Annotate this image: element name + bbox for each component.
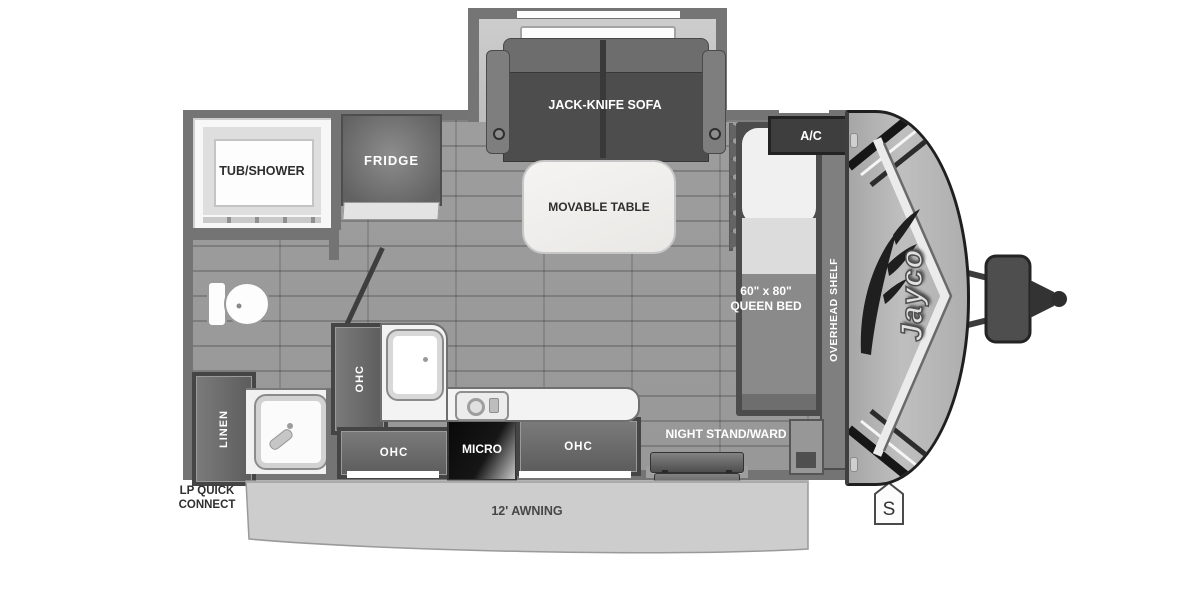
bathroom-wall-right: [331, 118, 341, 230]
jack-knife-sofa-label: JACK-KNIFE SOFA: [505, 98, 705, 112]
dinette-window: [519, 471, 631, 478]
fridge-cabinet: FRIDGE: [341, 114, 442, 206]
sofa-hinge-icon: [493, 128, 505, 140]
toilet-icon: [203, 276, 281, 332]
stove-icon: [455, 391, 509, 421]
tub-shower-label: TUB/SHOWER: [200, 164, 324, 178]
sofa-hinge-icon: [709, 128, 721, 140]
movable-table-label: MOVABLE TABLE: [548, 200, 650, 214]
cap-latch-icon: [850, 133, 858, 148]
rv-floorplan: JACK-KNIFE SOFA TUB/SHOWER LINEN FRIDGE …: [0, 0, 1200, 600]
kitchen-window: [347, 471, 439, 478]
sofa-seat: [503, 72, 709, 162]
ac-label: A/C: [800, 129, 822, 143]
awning-label: 12' AWNING: [447, 504, 607, 518]
shower-curtain-rail: [203, 217, 321, 223]
overhead-shelf-label: OVERHEAD SHELF: [828, 258, 840, 362]
faucet-dot-icon: [287, 423, 293, 429]
bed-foot: [742, 394, 816, 410]
ohc-label: OHC: [564, 441, 593, 453]
burner-icon: [467, 398, 485, 416]
ohc-label: OHC: [354, 365, 366, 392]
overhead-cabinet-right: OHC: [516, 417, 641, 476]
cap-latch-icon: [850, 457, 858, 472]
spare-tire-badge: S: [873, 482, 905, 526]
air-conditioner: A/C: [768, 116, 854, 155]
queen-bed-label: 60" x 80" QUEEN BED: [706, 284, 826, 314]
stove-knob-icon: [489, 398, 499, 413]
kitchen-sink-icon: [388, 331, 442, 399]
bathroom-wall: [183, 228, 339, 240]
night-stand-drawer: [796, 452, 816, 468]
queen-bed: [736, 122, 822, 416]
kitchen-faucet-icon: [423, 357, 428, 362]
awning: [243, 479, 813, 559]
linen-label: LINEN: [218, 410, 230, 448]
fridge-pullout-shelf: [342, 202, 439, 220]
lp-quick-connect-label: LP QUICK CONNECT: [166, 485, 248, 512]
overhead-shelf: OVERHEAD SHELF: [820, 150, 848, 470]
ohc-label: OHC: [380, 447, 409, 459]
bathroom-wall-stub: [329, 238, 339, 260]
micro-label: MICRO: [462, 442, 502, 456]
spare-badge-letter: S: [883, 499, 896, 520]
jayco-logo: Jayco: [891, 220, 933, 370]
slideout-window: [517, 11, 680, 18]
fridge-label: FRIDGE: [364, 153, 419, 168]
front-cap: Jayco: [845, 110, 970, 486]
microwave: MICRO: [447, 417, 517, 481]
bed-sheet: [742, 218, 816, 278]
night-stand-label: NIGHT STAND/WARD: [660, 427, 792, 441]
front-window: [779, 106, 829, 113]
movable-table: MOVABLE TABLE: [522, 160, 676, 254]
